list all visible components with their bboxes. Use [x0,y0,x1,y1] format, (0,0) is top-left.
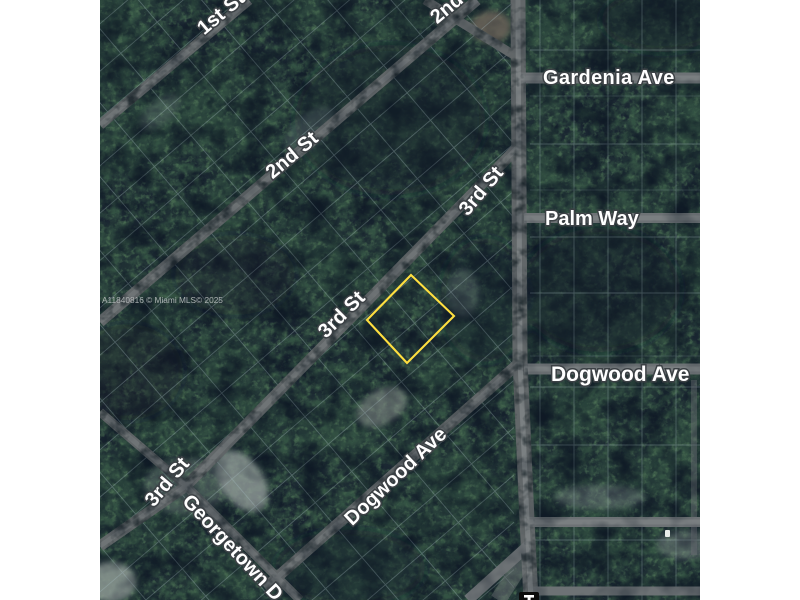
svg-text:Dogwood Ave: Dogwood Ave [551,363,689,386]
svg-text:Palm Way: Palm Way [545,208,640,230]
svg-text:A11840816 © Miami MLS© 2025: A11840816 © Miami MLS© 2025 [102,295,223,305]
svg-text:Gardenia Ave: Gardenia Ave [543,67,675,89]
